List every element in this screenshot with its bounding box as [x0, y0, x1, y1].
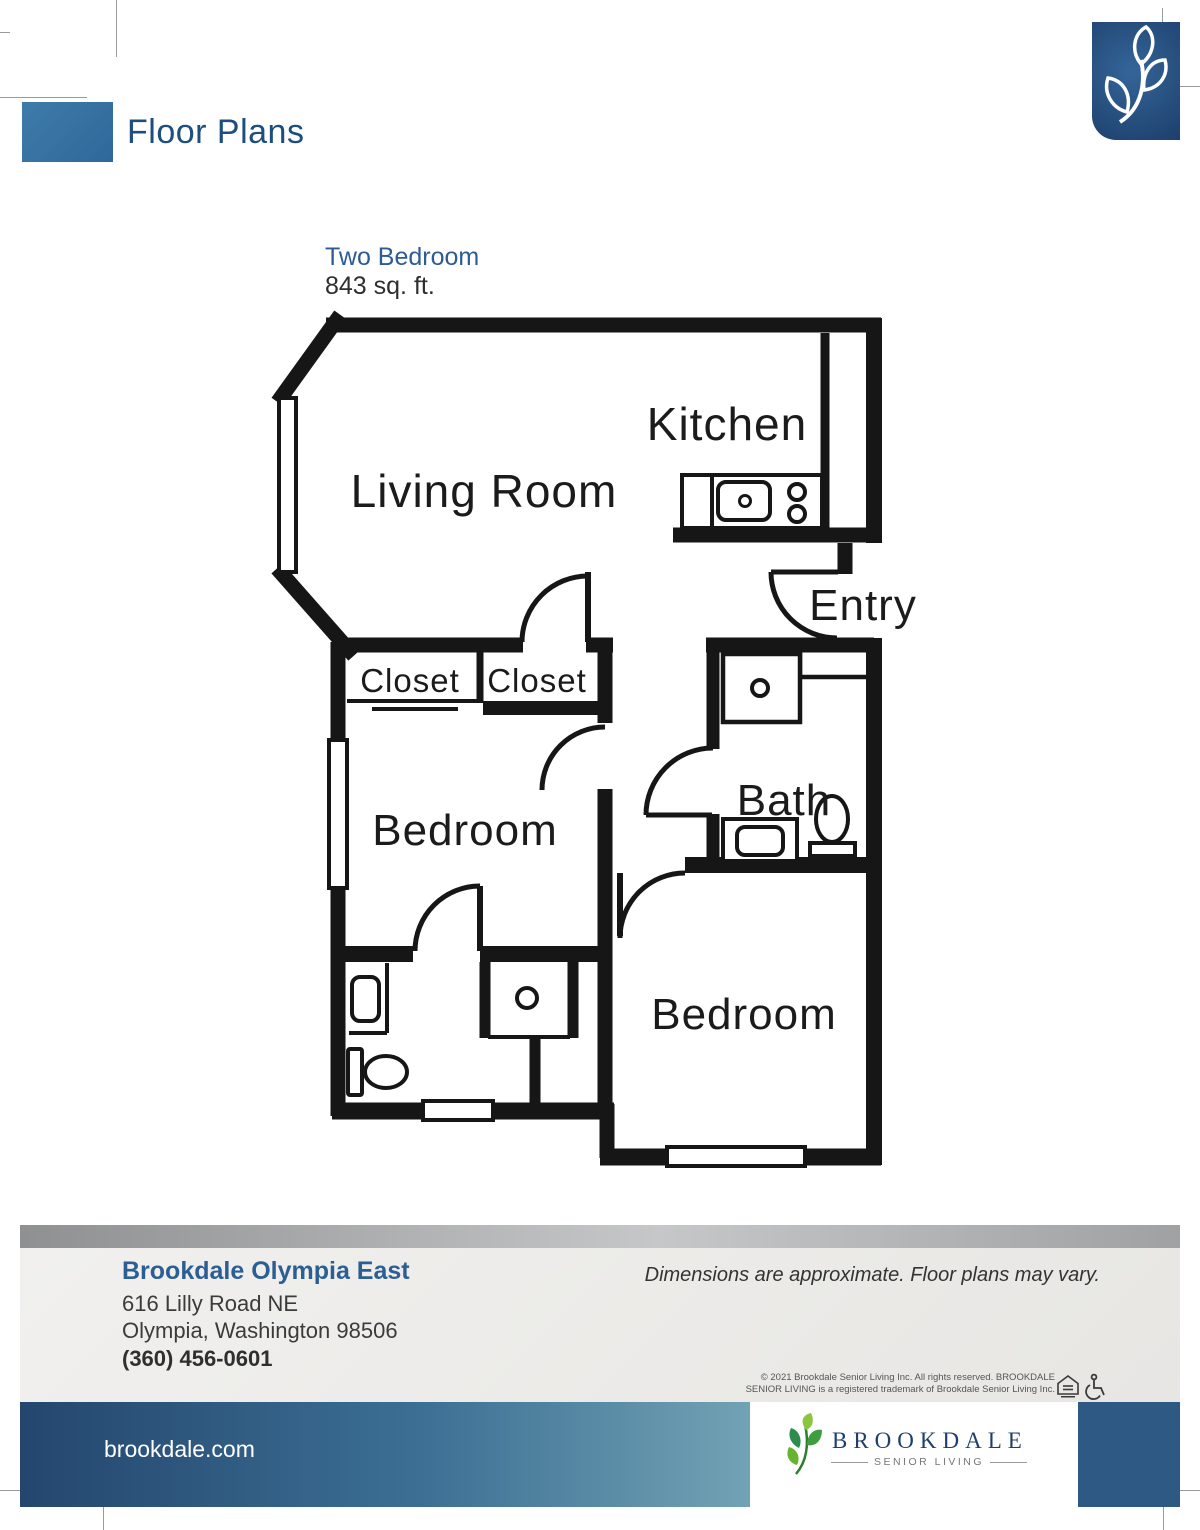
footer-accent-square: [1078, 1402, 1180, 1507]
toilet-bowl: [365, 1056, 407, 1088]
address-line-1: 616 Lilly Road NE: [122, 1291, 298, 1317]
bathroom-window: [423, 1101, 493, 1120]
vanity-sink-drain: [517, 988, 537, 1008]
room-label-kitchen: Kitchen: [647, 398, 807, 450]
room-label-entry: Entry: [809, 581, 917, 630]
room-labels: Living Room Kitchen Entry Closet Closet …: [351, 398, 917, 1039]
room-label-closet-left: Closet: [360, 662, 460, 699]
room-label-living-room: Living Room: [351, 465, 618, 517]
footer-gray-bar: [20, 1225, 1180, 1248]
toilet-tank: [348, 1049, 362, 1095]
brand-subtitle-row: SENIOR LIVING: [831, 1456, 1027, 1468]
bedroom-window: [329, 740, 347, 888]
bedroom-window: [667, 1147, 805, 1166]
disclaimer-text: Dimensions are approximate. Floor plans …: [645, 1264, 1100, 1287]
brookdale-leaf-icon: [786, 1412, 824, 1476]
equal-housing-icon: [1056, 1374, 1080, 1399]
room-label-bath: Bath: [737, 776, 832, 825]
wheelchair-accessible-icon: [1084, 1373, 1108, 1400]
copyright-line-2: SENIOR LIVING is a registered trademark …: [746, 1384, 1055, 1396]
brand-subtitle: SENIOR LIVING: [874, 1456, 984, 1468]
room-label-closet-right: Closet: [487, 662, 587, 699]
community-name: Brookdale Olympia East: [122, 1257, 410, 1286]
copyright-text: © 2021 Brookdale Senior Living Inc. All …: [746, 1372, 1055, 1395]
bath-sink: [352, 977, 379, 1021]
burner: [789, 506, 805, 522]
floor-plan-page: Floor Plans Two Bedroom 843 sq. ft.: [0, 0, 1200, 1530]
bath-sink: [737, 827, 783, 855]
divider-line: [990, 1462, 1027, 1463]
bay-window: [279, 398, 296, 572]
room-label-bedroom-1: Bedroom: [372, 806, 558, 855]
address-line-2: Olympia, Washington 98506: [122, 1318, 398, 1344]
brand-wordmark: BROOKDALE: [832, 1428, 1028, 1454]
shower-drain: [752, 680, 768, 696]
divider-line: [831, 1462, 868, 1463]
plan-doors: [415, 572, 838, 951]
toilet-tank: [810, 843, 855, 856]
website-link[interactable]: brookdale.com: [104, 1436, 255, 1463]
room-label-bedroom-2: Bedroom: [651, 990, 837, 1039]
copyright-line-1: © 2021 Brookdale Senior Living Inc. All …: [746, 1372, 1055, 1384]
phone-number: (360) 456-0601: [122, 1346, 272, 1372]
burner: [789, 484, 805, 500]
